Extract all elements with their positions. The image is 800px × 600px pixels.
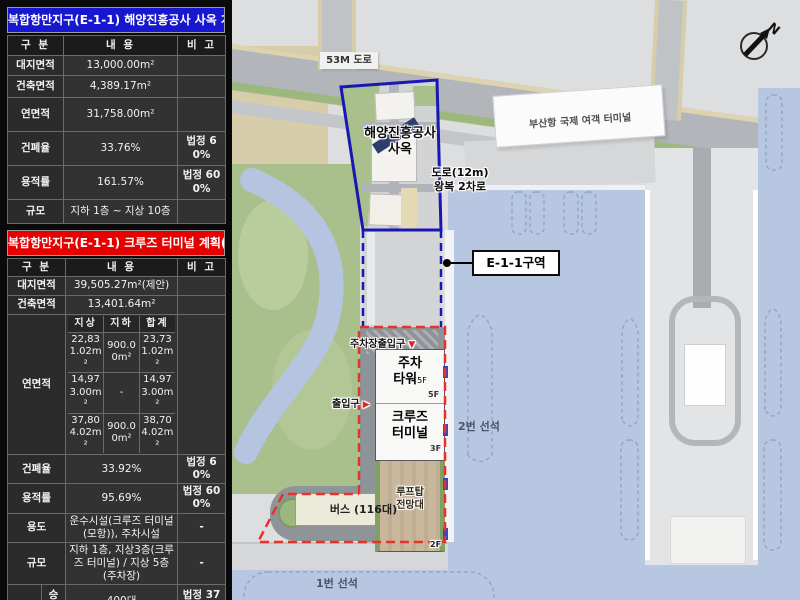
kobc-office-label: 해양진흥공사 사옥: [352, 126, 448, 159]
door-marker-blue: [443, 366, 448, 378]
parking-label: 주차대수: [8, 585, 42, 600]
door-marker-blue: [443, 478, 448, 490]
office-plan-title: 복합항만지구(E-1-1) 해양진흥공사 사옥 계획(안): [7, 7, 225, 33]
row-value: 400대: [66, 585, 178, 600]
zone-e11-label: E-1-1구역: [472, 250, 560, 276]
berth1-label: 1번 선석: [316, 575, 358, 591]
row-value: 13,401.64m²: [66, 296, 178, 315]
sub-cell: 14,973.00m²: [139, 373, 175, 414]
sub-cell: 900.00m²: [104, 332, 140, 373]
sub-header: 지하: [104, 316, 140, 332]
table-row: 연면적 31,758.00m²: [8, 98, 226, 132]
north-letter: N: [764, 20, 782, 38]
cruise-plan-table: 구 분 내 용 비 고 대지면적 39,505.27m²(제안) 건축면적 13…: [7, 258, 226, 600]
park-light-patch: [238, 200, 308, 310]
parking-entrance-label: 주차장출입구 ▼: [350, 335, 415, 350]
floor-area-subtable: 지상 지하 합계 22,831.02m² 900.00m² 23,731.02m…: [68, 316, 175, 453]
row-note: 법정 600%: [178, 484, 226, 513]
sub-cell: 22,831.02m²: [68, 332, 104, 373]
pier-edge-white: [645, 190, 650, 560]
row-value: 지하 1층, 지상3층(크루즈 터미널) / 지상 5층(주차장): [66, 542, 178, 584]
floor-area-row: 연면적 지상 지하 합계 22,831.02m² 900.00m² 23,731…: [8, 315, 226, 455]
row-label: 규모: [8, 542, 66, 584]
table-row: 용적률 95.69% 법정 600%: [8, 484, 226, 513]
row-note: [178, 296, 226, 315]
row-note: -: [178, 542, 226, 584]
row-value: 4,389.17m²: [64, 76, 178, 98]
row-note: -: [178, 513, 226, 542]
row-note: 법정 378대: [178, 585, 226, 600]
row-note: 법정 60%: [178, 132, 226, 166]
row-label: 건축면적: [8, 296, 66, 315]
row-value: 13,000.00m²: [64, 56, 178, 76]
sub-cell: 37,804.02m²: [68, 413, 104, 453]
col-header-note: 비 고: [178, 36, 226, 56]
floor-5f-label: 5F: [417, 376, 427, 385]
row-note: 법정 60%: [178, 455, 226, 484]
row-label: 용적률: [8, 166, 64, 200]
arrow-down-red-icon: ▼: [405, 340, 415, 350]
pier-building: [684, 344, 726, 406]
pier-edge-white: [753, 190, 758, 560]
row-value: 31,758.00m²: [64, 98, 178, 132]
row-note: [178, 76, 226, 98]
info-panel: 복합항만지구(E-1-1) 해양진흥공사 사옥 계획(안) 구 분 내 용 비 …: [0, 0, 232, 600]
parking-row-car: 주차대수 승용 400대 법정 378대: [8, 585, 226, 600]
col-header-content: 내 용: [64, 36, 178, 56]
berth2-label: 2번 선석: [458, 418, 500, 434]
building-section-divider: [376, 403, 444, 404]
pier-end-building: [670, 516, 746, 564]
row-label: 연면적: [8, 98, 64, 132]
bus-parking-label: 버스 (116대): [295, 493, 432, 526]
table-row: 건축면적 13,401.64m²: [8, 296, 226, 315]
cruise-plan-title: 복합항만지구(E-1-1) 크루즈 터미널 계획(안): [7, 230, 225, 256]
sub-cell: 38,704.02m²: [139, 413, 175, 453]
entrance-label: 출입구 ▶: [332, 395, 370, 410]
table-row: 규모 지하 1층 ~ 지상 10층: [8, 200, 226, 224]
water-right-channel: [758, 88, 800, 600]
table-row: 용도 운수시설(크루즈 터미널(모항)), 주차시설 -: [8, 513, 226, 542]
quay-edge-white: [445, 230, 454, 542]
col-header-note: 비 고: [178, 259, 226, 277]
table-header-row: 구 분 내 용 비 고: [8, 259, 226, 277]
row-value: 33.92%: [66, 455, 178, 484]
sub-cell: 23,731.02m²: [139, 332, 175, 373]
table-header-row: 구 분 내 용 비 고: [8, 36, 226, 56]
row-label: 건폐율: [8, 455, 66, 484]
floor-5f: 5F: [428, 390, 439, 399]
row-label: 건폐율: [8, 132, 64, 166]
table-row: 건축면적 4,389.17m²: [8, 76, 226, 98]
row-label: 대지면적: [8, 56, 64, 76]
door-marker-blue: [443, 424, 448, 436]
table-row: 건폐율 33.76% 법정 60%: [8, 132, 226, 166]
sub-cell: 900.00m²: [104, 413, 140, 453]
col-header-category: 구 분: [8, 259, 66, 277]
row-label: 용적률: [8, 484, 66, 513]
row-label: 규모: [8, 200, 64, 224]
transition-sidewalk: [367, 232, 375, 325]
row-value: 지하 1층 ~ 지상 10층: [64, 200, 178, 224]
water-basin-berth2: [448, 185, 645, 600]
sub-header: 지상: [68, 316, 104, 332]
col-header-content: 내 용: [66, 259, 178, 277]
office-building: [374, 91, 415, 121]
sub-cell: 14,973.00m²: [68, 373, 104, 414]
col-header-category: 구 분: [8, 36, 64, 56]
sub-cell: -: [104, 373, 140, 414]
office-plan-table: 구 분 내 용 비 고 대지면적 13,000.00m² 건축면적 4,389.…: [7, 35, 226, 224]
door-marker-blue: [443, 528, 448, 540]
row-label: 용도: [8, 513, 66, 542]
office-site-green-patch: [413, 86, 439, 106]
row-value: 95.69%: [66, 484, 178, 513]
row-value: 33.76%: [64, 132, 178, 166]
row-value: 161.57%: [64, 166, 178, 200]
parking-tower-label: 주차 타워5F: [377, 356, 443, 389]
water-pier-south: [645, 565, 758, 600]
road-12m-label: 도로(12m) 왕복 2차로: [420, 166, 500, 194]
row-label: 연면적: [8, 315, 66, 455]
table-row: 용적률 161.57% 법정 600%: [8, 166, 226, 200]
sub-header: 합계: [139, 316, 175, 332]
parking-type: 승용: [42, 585, 66, 600]
row-label: 건축면적: [8, 76, 64, 98]
office-plaza-beige: [401, 188, 417, 230]
row-note: [178, 315, 226, 455]
site-plan-map: 53M 도로 해양진흥공사 사옥 도로(12m) 왕복 2차로 부산항 국제 여…: [232, 0, 800, 600]
park-light-patch: [272, 330, 352, 450]
table-row: 규모 지하 1층, 지상3층(크루즈 터미널) / 지상 5층(주차장) -: [8, 542, 226, 584]
row-note: [178, 277, 226, 296]
row-value: 39,505.27m²(제안): [66, 277, 178, 296]
floor-2f: 2F: [430, 540, 441, 549]
slide: { "panel": { "table1": { "title": "복합항만지…: [0, 0, 800, 600]
arrow-right-red-icon: ▶: [360, 400, 370, 410]
table-row: 대지면적 39,505.27m²(제안): [8, 277, 226, 296]
row-note: [178, 56, 226, 76]
row-note: [178, 98, 226, 132]
pier-road: [693, 148, 711, 308]
road-53m-label: 53M 도로: [320, 52, 378, 69]
floor-3f: 3F: [430, 444, 441, 453]
table-row: 대지면적 13,000.00m²: [8, 56, 226, 76]
cruise-terminal-label: 크루즈 터미널: [377, 410, 443, 443]
table-row: 건폐율 33.92% 법정 60%: [8, 455, 226, 484]
row-note: 법정 600%: [178, 166, 226, 200]
row-label: 대지면적: [8, 277, 66, 296]
row-value: 운수시설(크루즈 터미널(모항)), 주차시설: [66, 513, 178, 542]
row-note: [178, 200, 226, 224]
